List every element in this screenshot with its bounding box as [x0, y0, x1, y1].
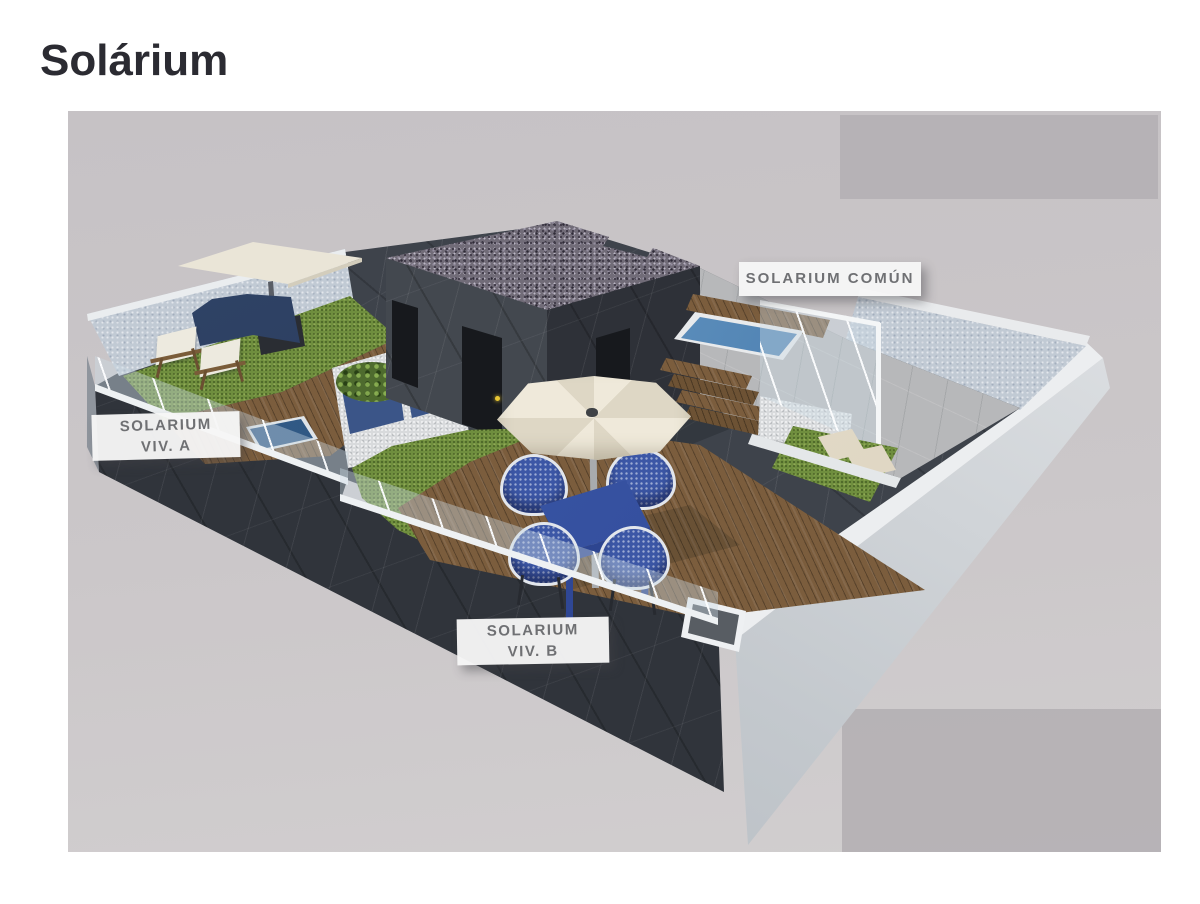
umbrella-knob — [586, 408, 598, 417]
label-line: VIV. B — [457, 640, 609, 664]
planter-plants-1 — [336, 362, 408, 402]
background-band-bottom-right — [842, 709, 1161, 852]
label-solarium-viv-a: SOLARIUM VIV. A — [91, 411, 240, 461]
wall-lamp — [495, 396, 500, 401]
deck-chair-2 — [194, 336, 254, 394]
patio-umbrella — [497, 376, 691, 460]
planter-plants-2 — [400, 348, 470, 390]
dining-chair-1 — [500, 454, 568, 516]
label-solarium-viv-b: SOLARIUM VIV. B — [457, 617, 610, 666]
label-line: SOLARIUM — [457, 619, 609, 643]
page-title: Solárium — [40, 36, 228, 86]
label-line: VIV. A — [92, 434, 240, 459]
solarium-render: Solárium — [0, 0, 1200, 904]
label-solarium-comun: SOLARIUM COMÚN — [739, 262, 921, 296]
background-band-top-right — [840, 115, 1158, 199]
